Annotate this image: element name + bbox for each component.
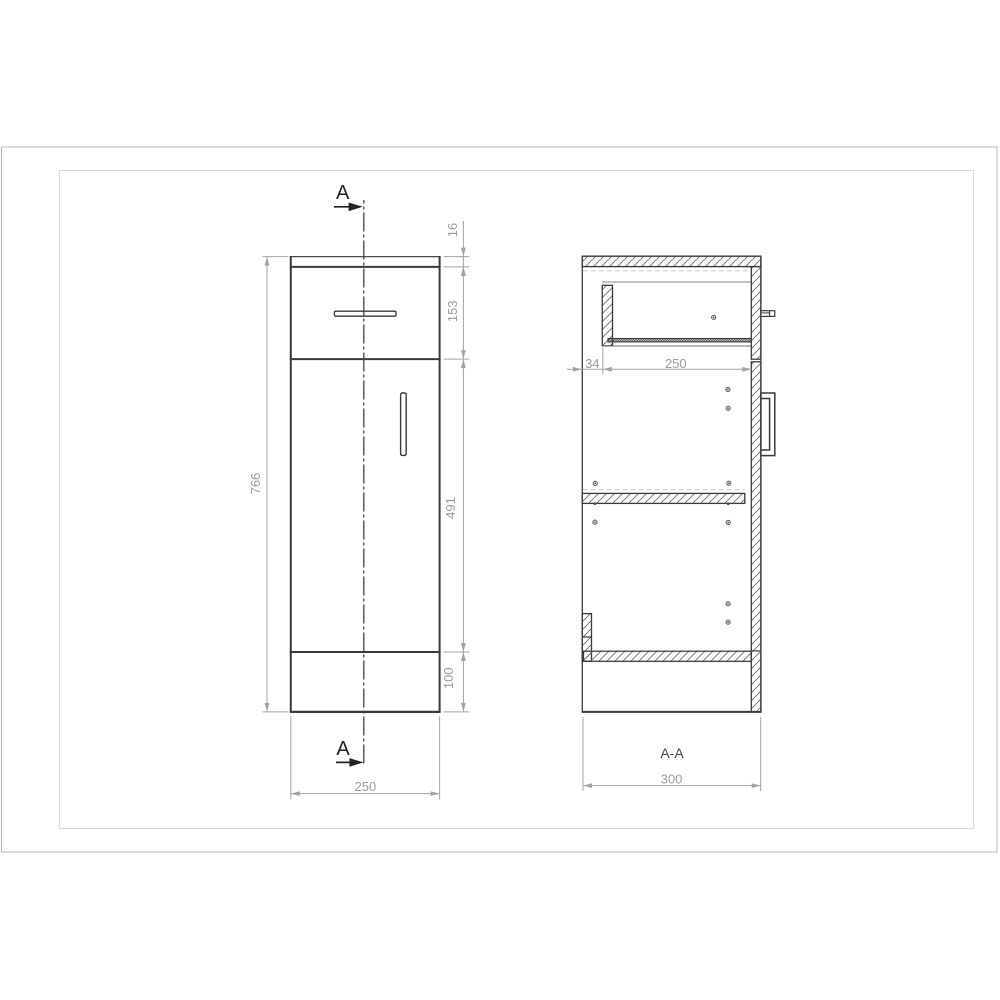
svg-text:250: 250 — [355, 779, 377, 794]
svg-text:100: 100 — [441, 667, 456, 689]
svg-text:766: 766 — [248, 473, 263, 495]
svg-text:300: 300 — [661, 771, 683, 786]
svg-text:491: 491 — [443, 497, 458, 519]
svg-text:153: 153 — [445, 300, 460, 322]
svg-text:250: 250 — [665, 356, 687, 371]
svg-text:A: A — [336, 738, 350, 760]
svg-text:A-A: A-A — [660, 745, 684, 761]
svg-text:34: 34 — [585, 356, 599, 371]
svg-text:16: 16 — [445, 223, 460, 237]
svg-text:A: A — [336, 182, 350, 204]
